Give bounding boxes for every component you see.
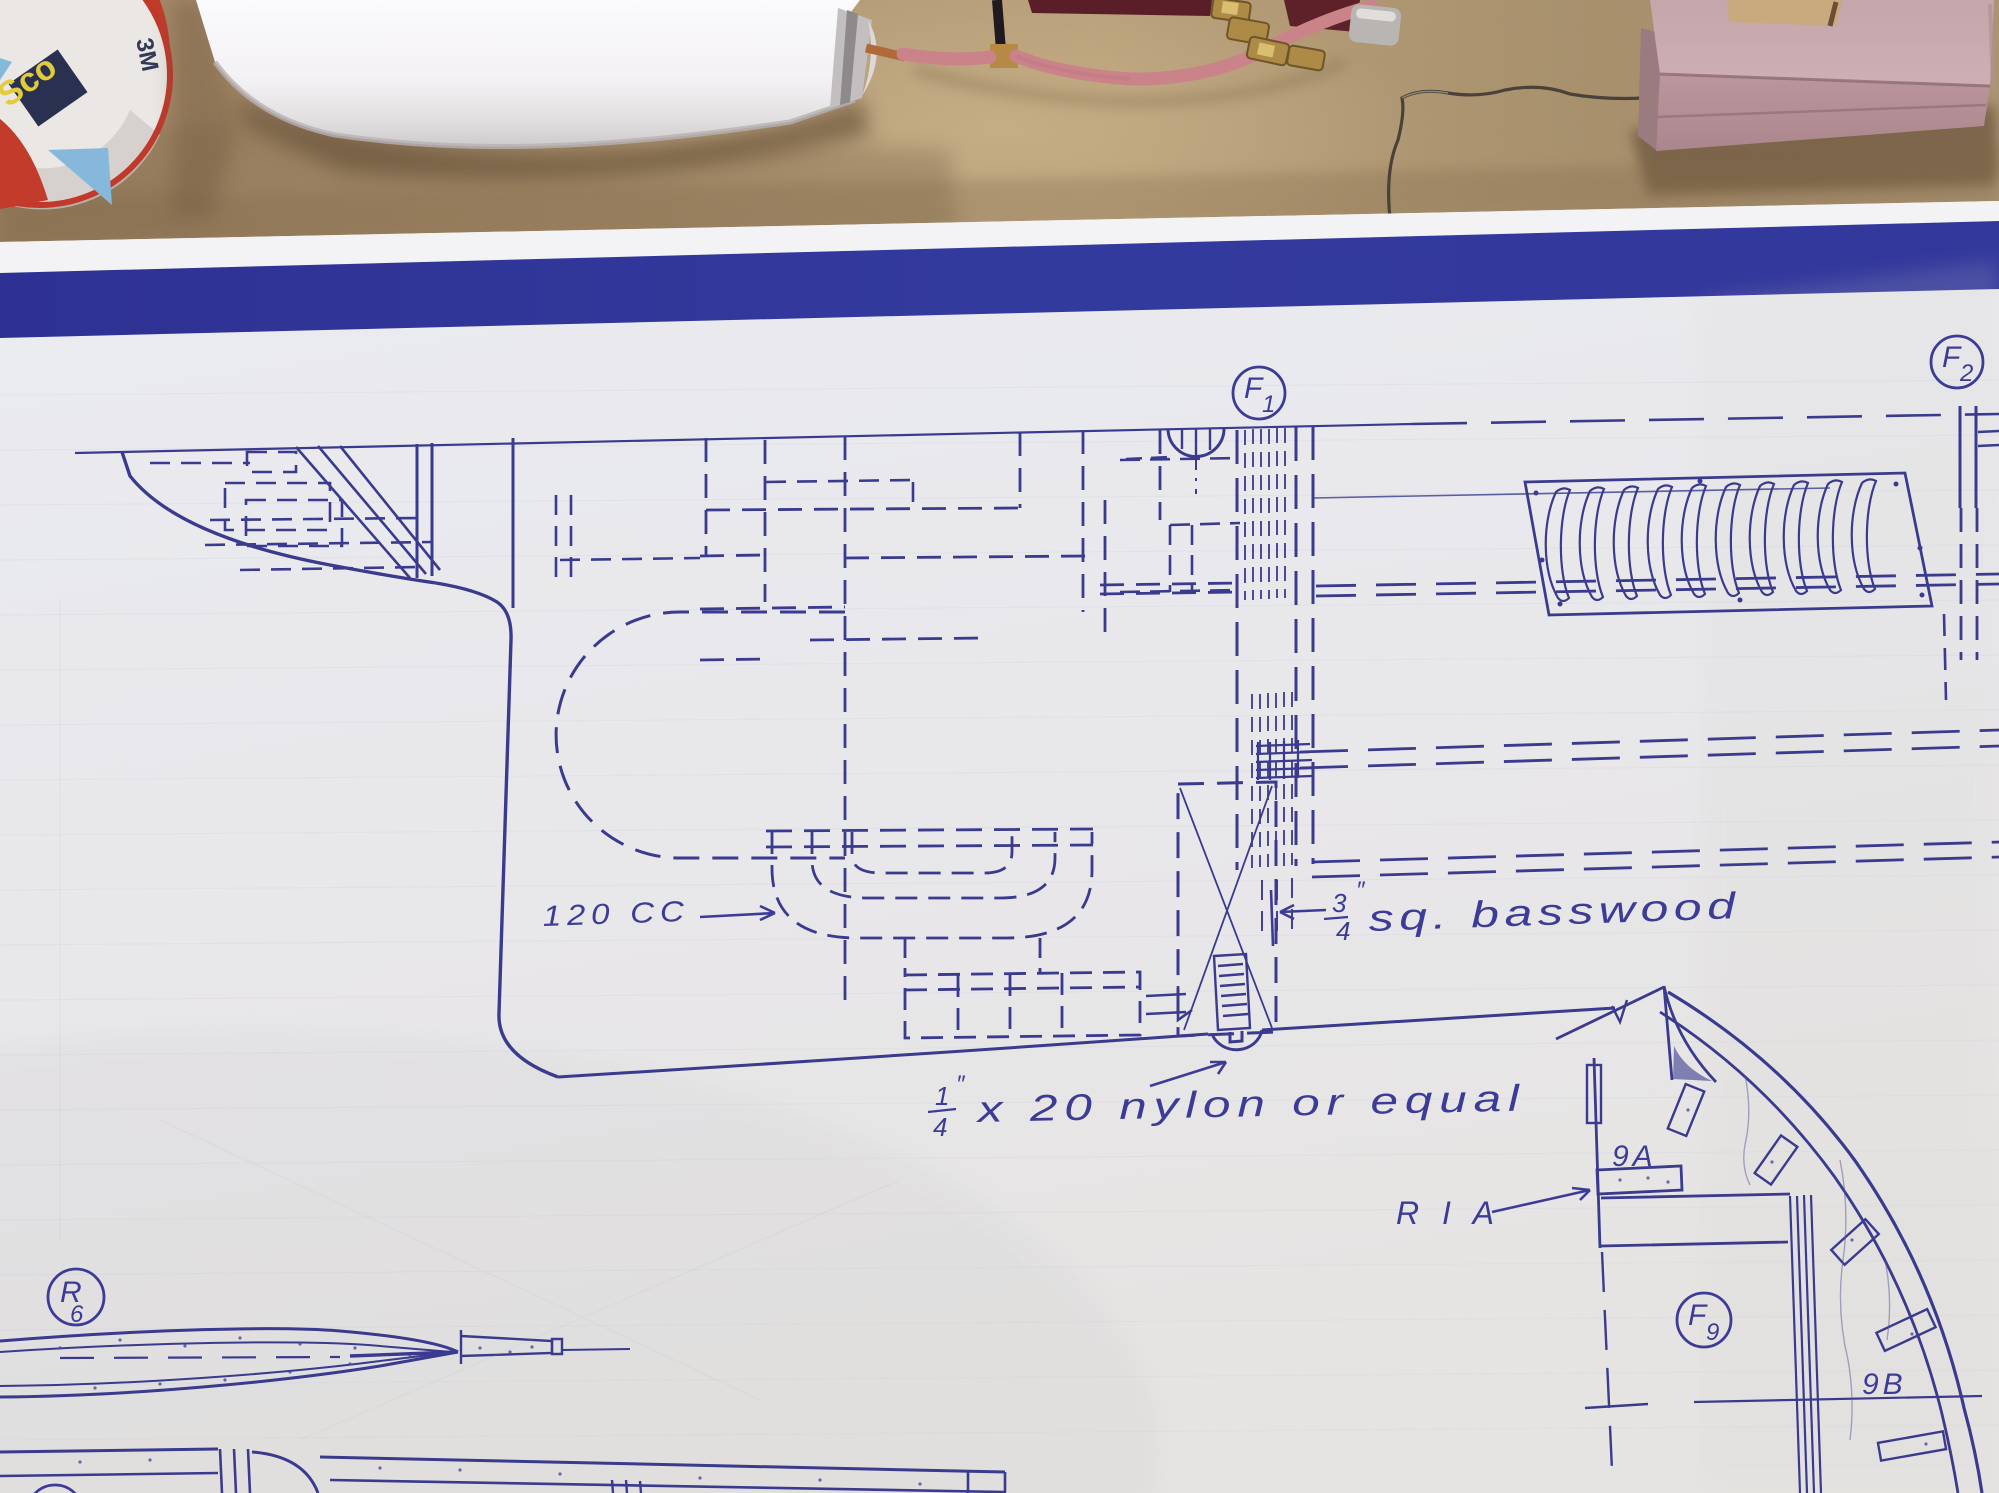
svg-text:4: 4: [933, 1112, 947, 1142]
svg-text:9: 9: [1706, 1319, 1719, 1346]
svg-text:1: 1: [1262, 391, 1275, 418]
svg-text:2: 2: [1959, 360, 1973, 387]
svg-text:F: F: [1942, 341, 1962, 374]
svg-text:3: 3: [1332, 888, 1347, 918]
svg-text:F: F: [1244, 372, 1264, 405]
svg-text:R I A: R I A: [1396, 1195, 1501, 1231]
svg-text:F: F: [1688, 1299, 1708, 1332]
svg-text:6: 6: [70, 1301, 84, 1328]
svg-text:9B: 9B: [1862, 1368, 1907, 1401]
svg-text:4: 4: [1336, 916, 1350, 946]
svg-text:9A: 9A: [1612, 1140, 1657, 1173]
svg-text:120 CC: 120 CC: [542, 896, 690, 933]
svg-text:1: 1: [935, 1081, 949, 1111]
